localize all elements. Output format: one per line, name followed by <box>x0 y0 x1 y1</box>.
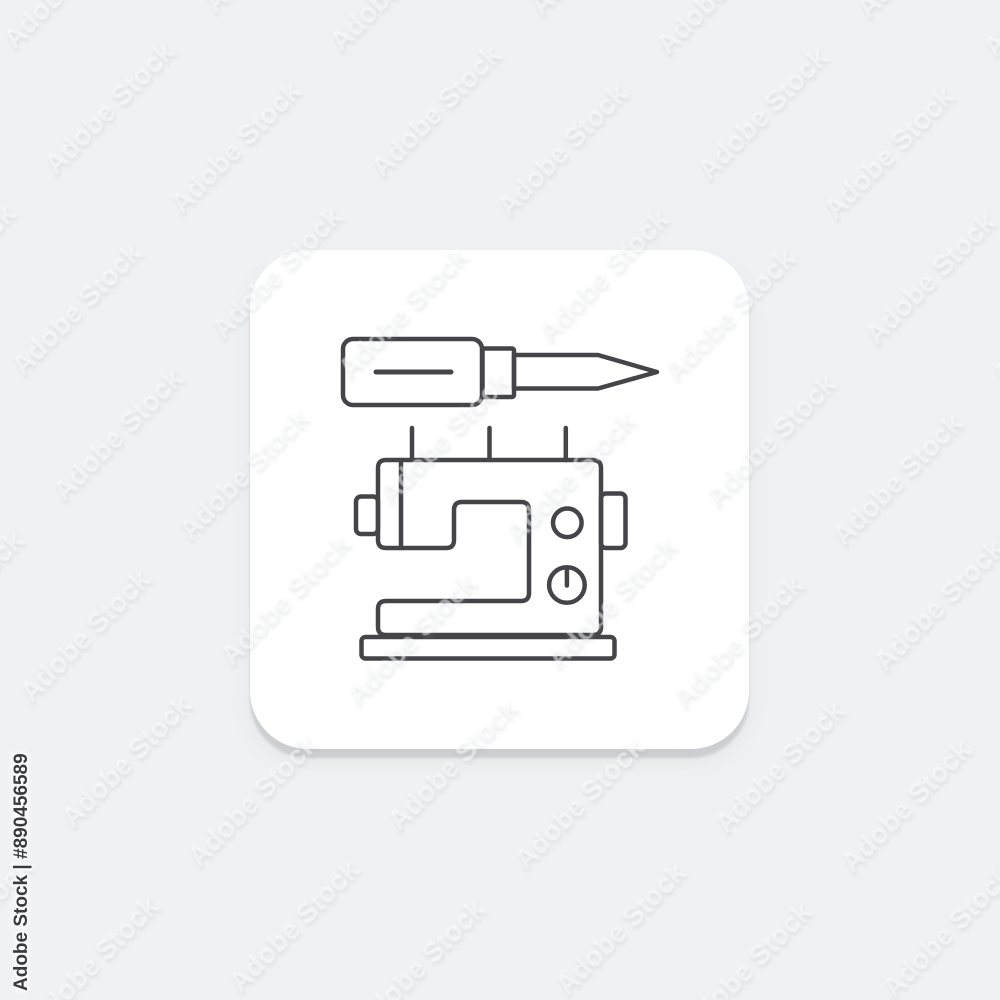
svg-text:Adobe Stock: Adobe Stock <box>826 407 968 551</box>
svg-text:Adobe Stock: Adobe Stock <box>524 0 666 21</box>
svg-text:Adobe Stock: Adobe Stock <box>851 0 993 24</box>
svg-text:Adobe Stock: Adobe Stock <box>977 0 1000 63</box>
svg-text:Adobe Stock: Adobe Stock <box>676 896 818 1000</box>
svg-text:Adobe Stock: Adobe Stock <box>491 78 633 222</box>
svg-text:Adobe Stock: Adobe Stock <box>508 731 650 875</box>
svg-text:Adobe Stock: Adobe Stock <box>22 890 164 1000</box>
svg-text:Adobe Stock: Adobe Stock <box>332 240 474 384</box>
svg-text:Adobe Stock: Adobe Stock <box>985 245 1000 389</box>
svg-text:Adobe Stock: Adobe Stock <box>5 237 147 381</box>
svg-text:Adobe Stock: Adobe Stock <box>365 39 507 183</box>
svg-text:Adobe Stock: Adobe Stock <box>835 734 977 878</box>
svg-text:Adobe Stock: Adobe Stock <box>181 728 323 872</box>
svg-text:Adobe Stock: Adobe Stock <box>206 200 348 344</box>
svg-text:Adobe Stock: Adobe Stock <box>382 692 524 836</box>
svg-text:Adobe Stock: Adobe Stock <box>667 569 809 713</box>
svg-text:Adobe Stock: Adobe Stock <box>14 563 156 707</box>
svg-text:Adobe Stock: Adobe Stock <box>709 695 851 839</box>
svg-text:Adobe Stock: Adobe Stock <box>659 242 801 386</box>
svg-text:Adobe Stock: Adobe Stock <box>0 524 30 668</box>
svg-text:Adobe Stock: Adobe Stock <box>0 0 13 15</box>
svg-text:Adobe Stock: Adobe Stock <box>859 206 1000 350</box>
svg-text:Adobe Stock: Adobe Stock <box>868 533 1000 677</box>
svg-text:Adobe Stock: Adobe Stock <box>549 857 691 1000</box>
svg-text:Adobe Stock: Adobe Stock <box>373 365 515 509</box>
svg-text:Adobe Stock: Adobe Stock <box>0 198 21 342</box>
svg-text:Adobe Stock: Adobe Stock <box>876 859 1000 1000</box>
svg-text:Adobe Stock: Adobe Stock <box>500 404 642 548</box>
svg-text:Adobe Stock: Adobe Stock <box>197 0 339 18</box>
svg-text:Adobe Stock: Adobe Stock <box>38 36 180 180</box>
svg-text:Adobe Stock: Adobe Stock <box>341 566 483 710</box>
svg-text:Adobe Stock: Adobe Stock <box>214 527 356 671</box>
svg-text:Adobe Stock: Adobe Stock <box>173 401 315 545</box>
svg-text:Adobe Stock: Adobe Stock <box>47 362 189 506</box>
svg-text:Adobe Stock: Adobe Stock <box>55 689 197 833</box>
svg-text:Adobe Stock: Adobe Stock <box>164 75 306 219</box>
svg-text:Adobe Stock: Adobe Stock <box>994 572 1000 716</box>
svg-text:Adobe Stock: Adobe Stock <box>541 530 683 674</box>
svg-text:Adobe Stock: Adobe Stock <box>818 80 960 224</box>
svg-text:Adobe Stock: Adobe Stock <box>532 203 674 347</box>
svg-text:Adobe Stock: Adobe Stock <box>0 0 139 54</box>
svg-text:Adobe Stock: Adobe Stock <box>223 854 365 998</box>
svg-text:Adobe Stock: Adobe Stock <box>700 368 842 512</box>
svg-text:Adobe Stock: Adobe Stock <box>692 41 834 185</box>
svg-text:Adobe Stock: Adobe Stock <box>0 0 14 18</box>
svg-text:Adobe Stock: Adobe Stock <box>349 893 491 1000</box>
svg-text:Adobe Stock: Adobe Stock <box>650 0 792 60</box>
